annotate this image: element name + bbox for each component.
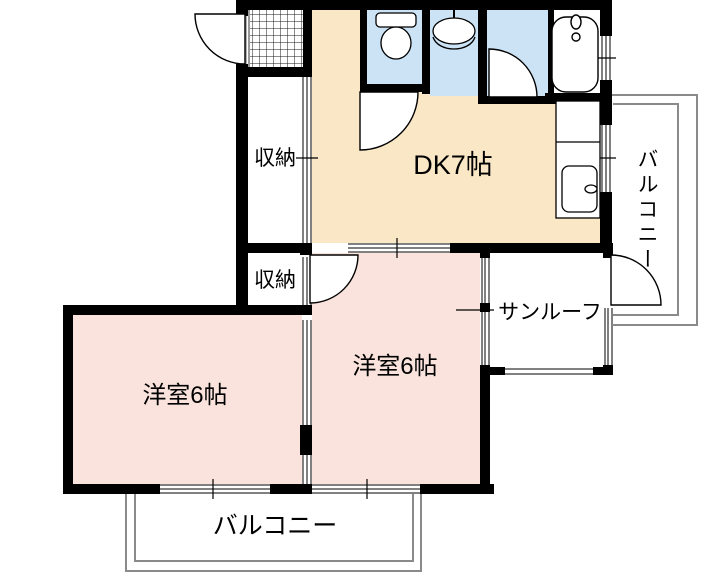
kitchen-sink-icon [556, 101, 600, 218]
entrance-tile-floor [248, 10, 303, 67]
bathtub-icon [552, 15, 598, 92]
label-sunroom: サンルーフ [490, 302, 610, 323]
label-balcony-bottom: バルコニー [190, 514, 360, 539]
label-bedroom-right: 洋室6帖 [320, 355, 470, 379]
floor-plan-drawing [0, 0, 705, 582]
label-balcony-right: バルコニー [631, 135, 657, 285]
label-dk: DK7帖 [378, 152, 528, 179]
label-closet-lower: 収納 [245, 270, 305, 291]
label-bedroom-left: 洋室6帖 [110, 384, 260, 408]
floor-plan: 収納 収納 DK7帖 洋室6帖 洋室6帖 サンルーフ バルコニー バルコニー [0, 0, 705, 582]
label-closet-upper: 収納 [245, 148, 305, 169]
